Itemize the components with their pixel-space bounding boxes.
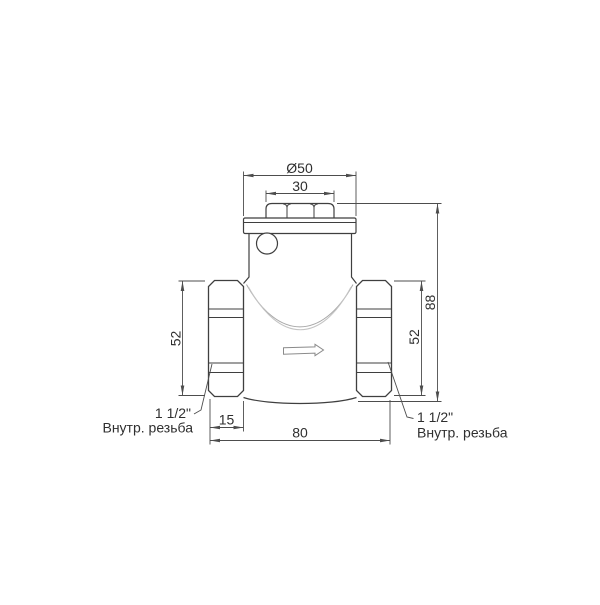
right-thread-size-text: 1 1/2" — [417, 409, 453, 425]
hex-cap — [266, 204, 334, 218]
bonnet-circle-detail — [257, 233, 278, 254]
right-union-nut — [357, 281, 392, 397]
dim-label-nut-length: 15 — [219, 412, 235, 428]
flow-arrow-icon — [284, 344, 324, 355]
left-thread-note-text: Внутр. резьба — [102, 420, 193, 436]
seat-curve — [247, 285, 354, 330]
dim-label-left-union-height: 52 — [168, 331, 184, 347]
dim-label-overall-height: 88 — [422, 295, 438, 311]
dim-label-right-union-height: 52 — [406, 329, 422, 345]
dim-label-cap-width: 30 — [292, 178, 308, 194]
dim-label-flange-diameter: Ø50 — [286, 160, 313, 176]
dim-label-overall-length: 80 — [292, 425, 308, 441]
left-thread-label: 1 1/2" Внутр. резьба — [102, 364, 212, 436]
right-thread-note-text: Внутр. резьба — [417, 425, 508, 441]
valve-body-bottom — [244, 398, 357, 404]
bonnet-flange — [244, 218, 357, 234]
left-union-nut — [209, 281, 244, 397]
valve-drawing: Ø50 30 88 52 52 15 — [0, 0, 600, 600]
technical-drawing-canvas: Ø50 30 88 52 52 15 — [0, 0, 600, 600]
